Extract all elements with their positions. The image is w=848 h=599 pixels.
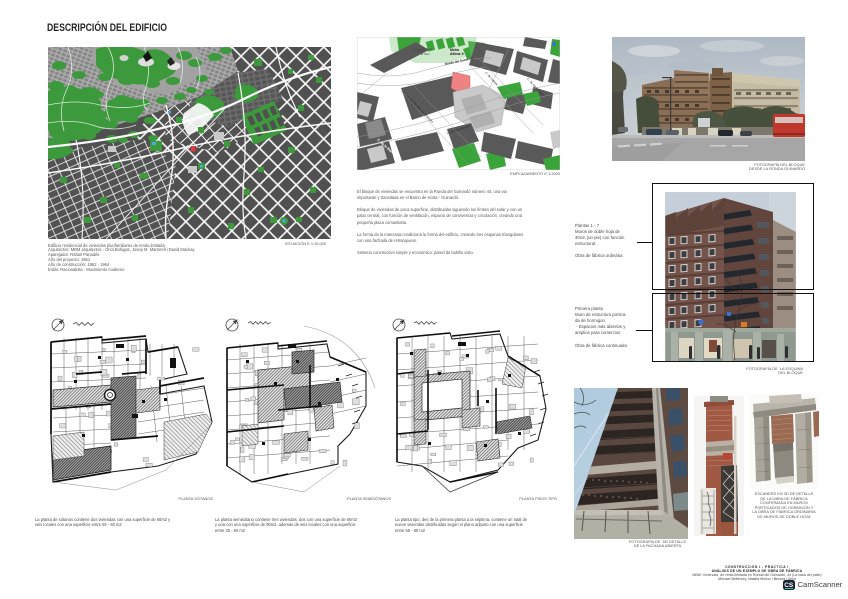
svg-text:el Saní: el Saní	[421, 52, 430, 56]
svg-text:Alfons X: Alfons X	[450, 52, 464, 56]
